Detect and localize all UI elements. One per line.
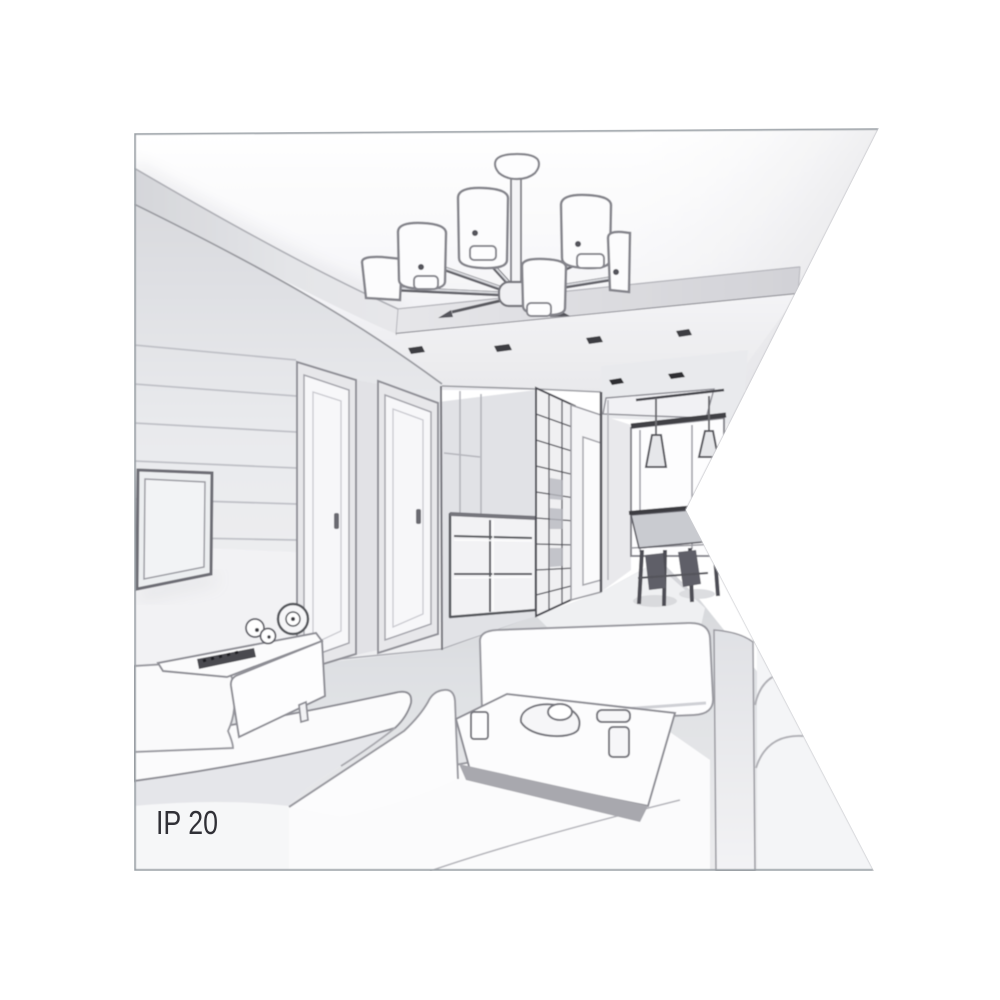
svg-text:IP 20: IP 20 xyxy=(156,804,218,841)
